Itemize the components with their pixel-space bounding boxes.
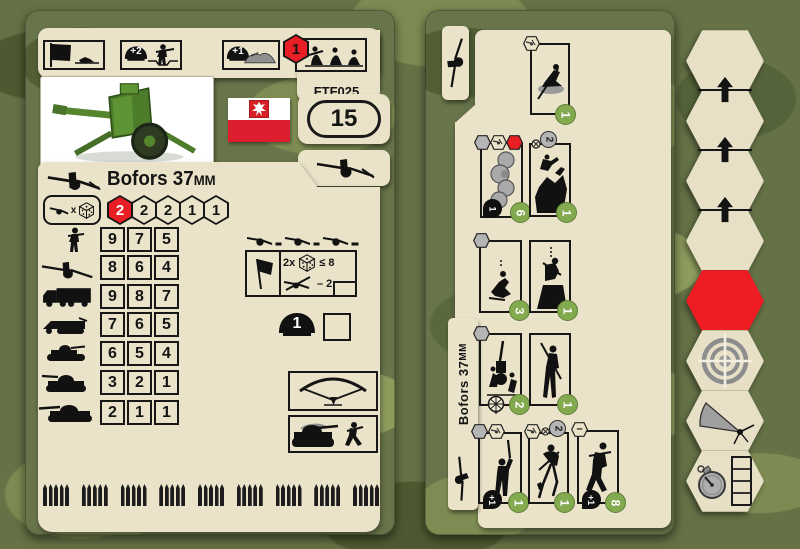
ammo-bullets [353, 484, 379, 508]
dice-icon [78, 202, 95, 219]
charging-soldier-icon [533, 440, 567, 500]
rifleman-icon [537, 339, 567, 403]
infantry-icon [65, 227, 87, 253]
ammo-bullets [159, 484, 185, 508]
ammo-bullets [82, 484, 108, 508]
hex-track [686, 30, 764, 526]
red-hex-badge [506, 135, 523, 150]
target-icon [697, 333, 753, 389]
cost-circle: 2 [509, 394, 530, 415]
unit-action-card: Bofors 37MM 1 [425, 10, 675, 535]
gun-hex-badge [523, 36, 540, 51]
advance-arrow-icon [717, 136, 733, 163]
fire-check-box: 2x ≤ 8 – 2 [245, 250, 357, 297]
ammo-bullets [121, 484, 147, 508]
gray-hex-badge [471, 424, 488, 439]
tank-assault-box [288, 415, 378, 453]
cost-circle: 1 [508, 492, 529, 513]
unit-title: Bofors 37MM [107, 168, 216, 191]
gun-hex-badge [488, 424, 505, 439]
glider-landing-box [288, 371, 378, 411]
gray-hex-badge [474, 135, 491, 150]
smoke-marker-badge: 1 [483, 199, 502, 218]
unit-stat-card: FTF025 +2 [25, 10, 395, 535]
cost-circle: 1 [557, 300, 578, 321]
ammo-bullets [43, 484, 69, 508]
attack-hex-3: 2 [155, 195, 181, 225]
ammo-strip [43, 484, 379, 508]
small-gun-icon [49, 204, 69, 216]
range-row-halftrack: 765 [100, 312, 179, 337]
attack-dice-box: x [43, 195, 101, 225]
gray-hex-badge [473, 233, 490, 248]
anti-tank-gun-icon [41, 260, 95, 280]
cost-circle: 3 [509, 300, 530, 321]
cost-circle: 1 [555, 104, 576, 125]
stopwatch-track-icon [692, 455, 758, 507]
fire-multiplier: 2x [283, 257, 295, 269]
range-row-truck: 987 [100, 284, 179, 309]
unit-title-caliber-unit: MM [194, 172, 216, 188]
fire-check-marker-slot [333, 281, 357, 297]
gun-hex-badge [524, 424, 541, 439]
gun-hex-badge [490, 135, 507, 150]
range-row-heavy-tank: 211 [100, 400, 179, 425]
attack-hex-5: 1 [203, 195, 229, 225]
gun-line-icons [247, 232, 361, 248]
title-gun-icon [47, 168, 101, 194]
ammo-bullets [314, 484, 340, 508]
attack-hex-2: 2 [131, 195, 157, 225]
ammo-bullets [198, 484, 224, 508]
range-row-light-armor: 654 [100, 341, 179, 366]
advance-arrow-icon [717, 76, 733, 103]
advance-arrow-icon [717, 196, 733, 223]
track-hex-target [686, 330, 764, 392]
attack-hex-1: 2 [107, 195, 133, 225]
camo-background: FTF025 +2 [0, 0, 800, 549]
at-gun-icon [445, 36, 465, 88]
morale-value: 1 [276, 315, 318, 333]
gray-hex-badge [473, 326, 490, 341]
moved-gun-penalty-icon [283, 276, 313, 291]
prone-sniper-icon [534, 55, 568, 105]
tank-and-runner-icon [290, 417, 376, 451]
cost-circle: 8 [605, 492, 626, 513]
fire-penalty: – 2 [317, 278, 332, 290]
fire-threshold: ≤ 8 [319, 257, 334, 269]
heavy-tank-icon [37, 403, 95, 423]
attack-hex-4: 1 [179, 195, 205, 225]
times-label: x [71, 205, 77, 216]
range-row-infantry: 975 [100, 227, 179, 252]
range-row-medium-tank: 321 [100, 370, 179, 395]
bonus-badge: +1 [483, 490, 502, 509]
glider-icon [294, 375, 372, 407]
halftrack-icon [39, 315, 95, 335]
rally-flag-icon [251, 257, 275, 291]
range-row-gun: 864 [100, 255, 179, 280]
truck-icon [41, 285, 95, 308]
cost-circle: 1 [556, 202, 577, 223]
bonus-badge: +1 [582, 490, 601, 509]
at-gun-icon [447, 454, 476, 503]
track-hex-time [686, 450, 764, 512]
action-card-title-tab: Bofors 37MM [448, 318, 478, 510]
track-hex-arc [686, 390, 764, 452]
casualty-count-badge: 2 [549, 420, 566, 437]
ammo-bullets [276, 484, 302, 508]
dice-icon [298, 254, 316, 272]
fire-arc-icon [694, 395, 756, 447]
crawling-soldier-icon [485, 258, 519, 304]
light-armor-icon [41, 344, 91, 363]
medium-tank-icon [39, 373, 93, 393]
action-card-title: Bofors 37MM [456, 343, 471, 425]
minus-hex-badge: – [571, 422, 588, 437]
cost-circle: 1 [554, 492, 575, 513]
track-hex-red [686, 270, 764, 332]
ordnance-tab [442, 26, 469, 100]
morale-marker-slot [323, 313, 351, 341]
pivot-icon [486, 395, 506, 415]
cost-circle: 1 [557, 394, 578, 415]
helmet-morale: 1 [276, 310, 318, 342]
gun-crew-push-icon [485, 339, 519, 401]
cost-circle: 6 [510, 202, 531, 223]
casualty-count-badge: 2 [540, 131, 557, 148]
running-soldier-icon [583, 440, 617, 498]
ammo-bullets [237, 484, 263, 508]
